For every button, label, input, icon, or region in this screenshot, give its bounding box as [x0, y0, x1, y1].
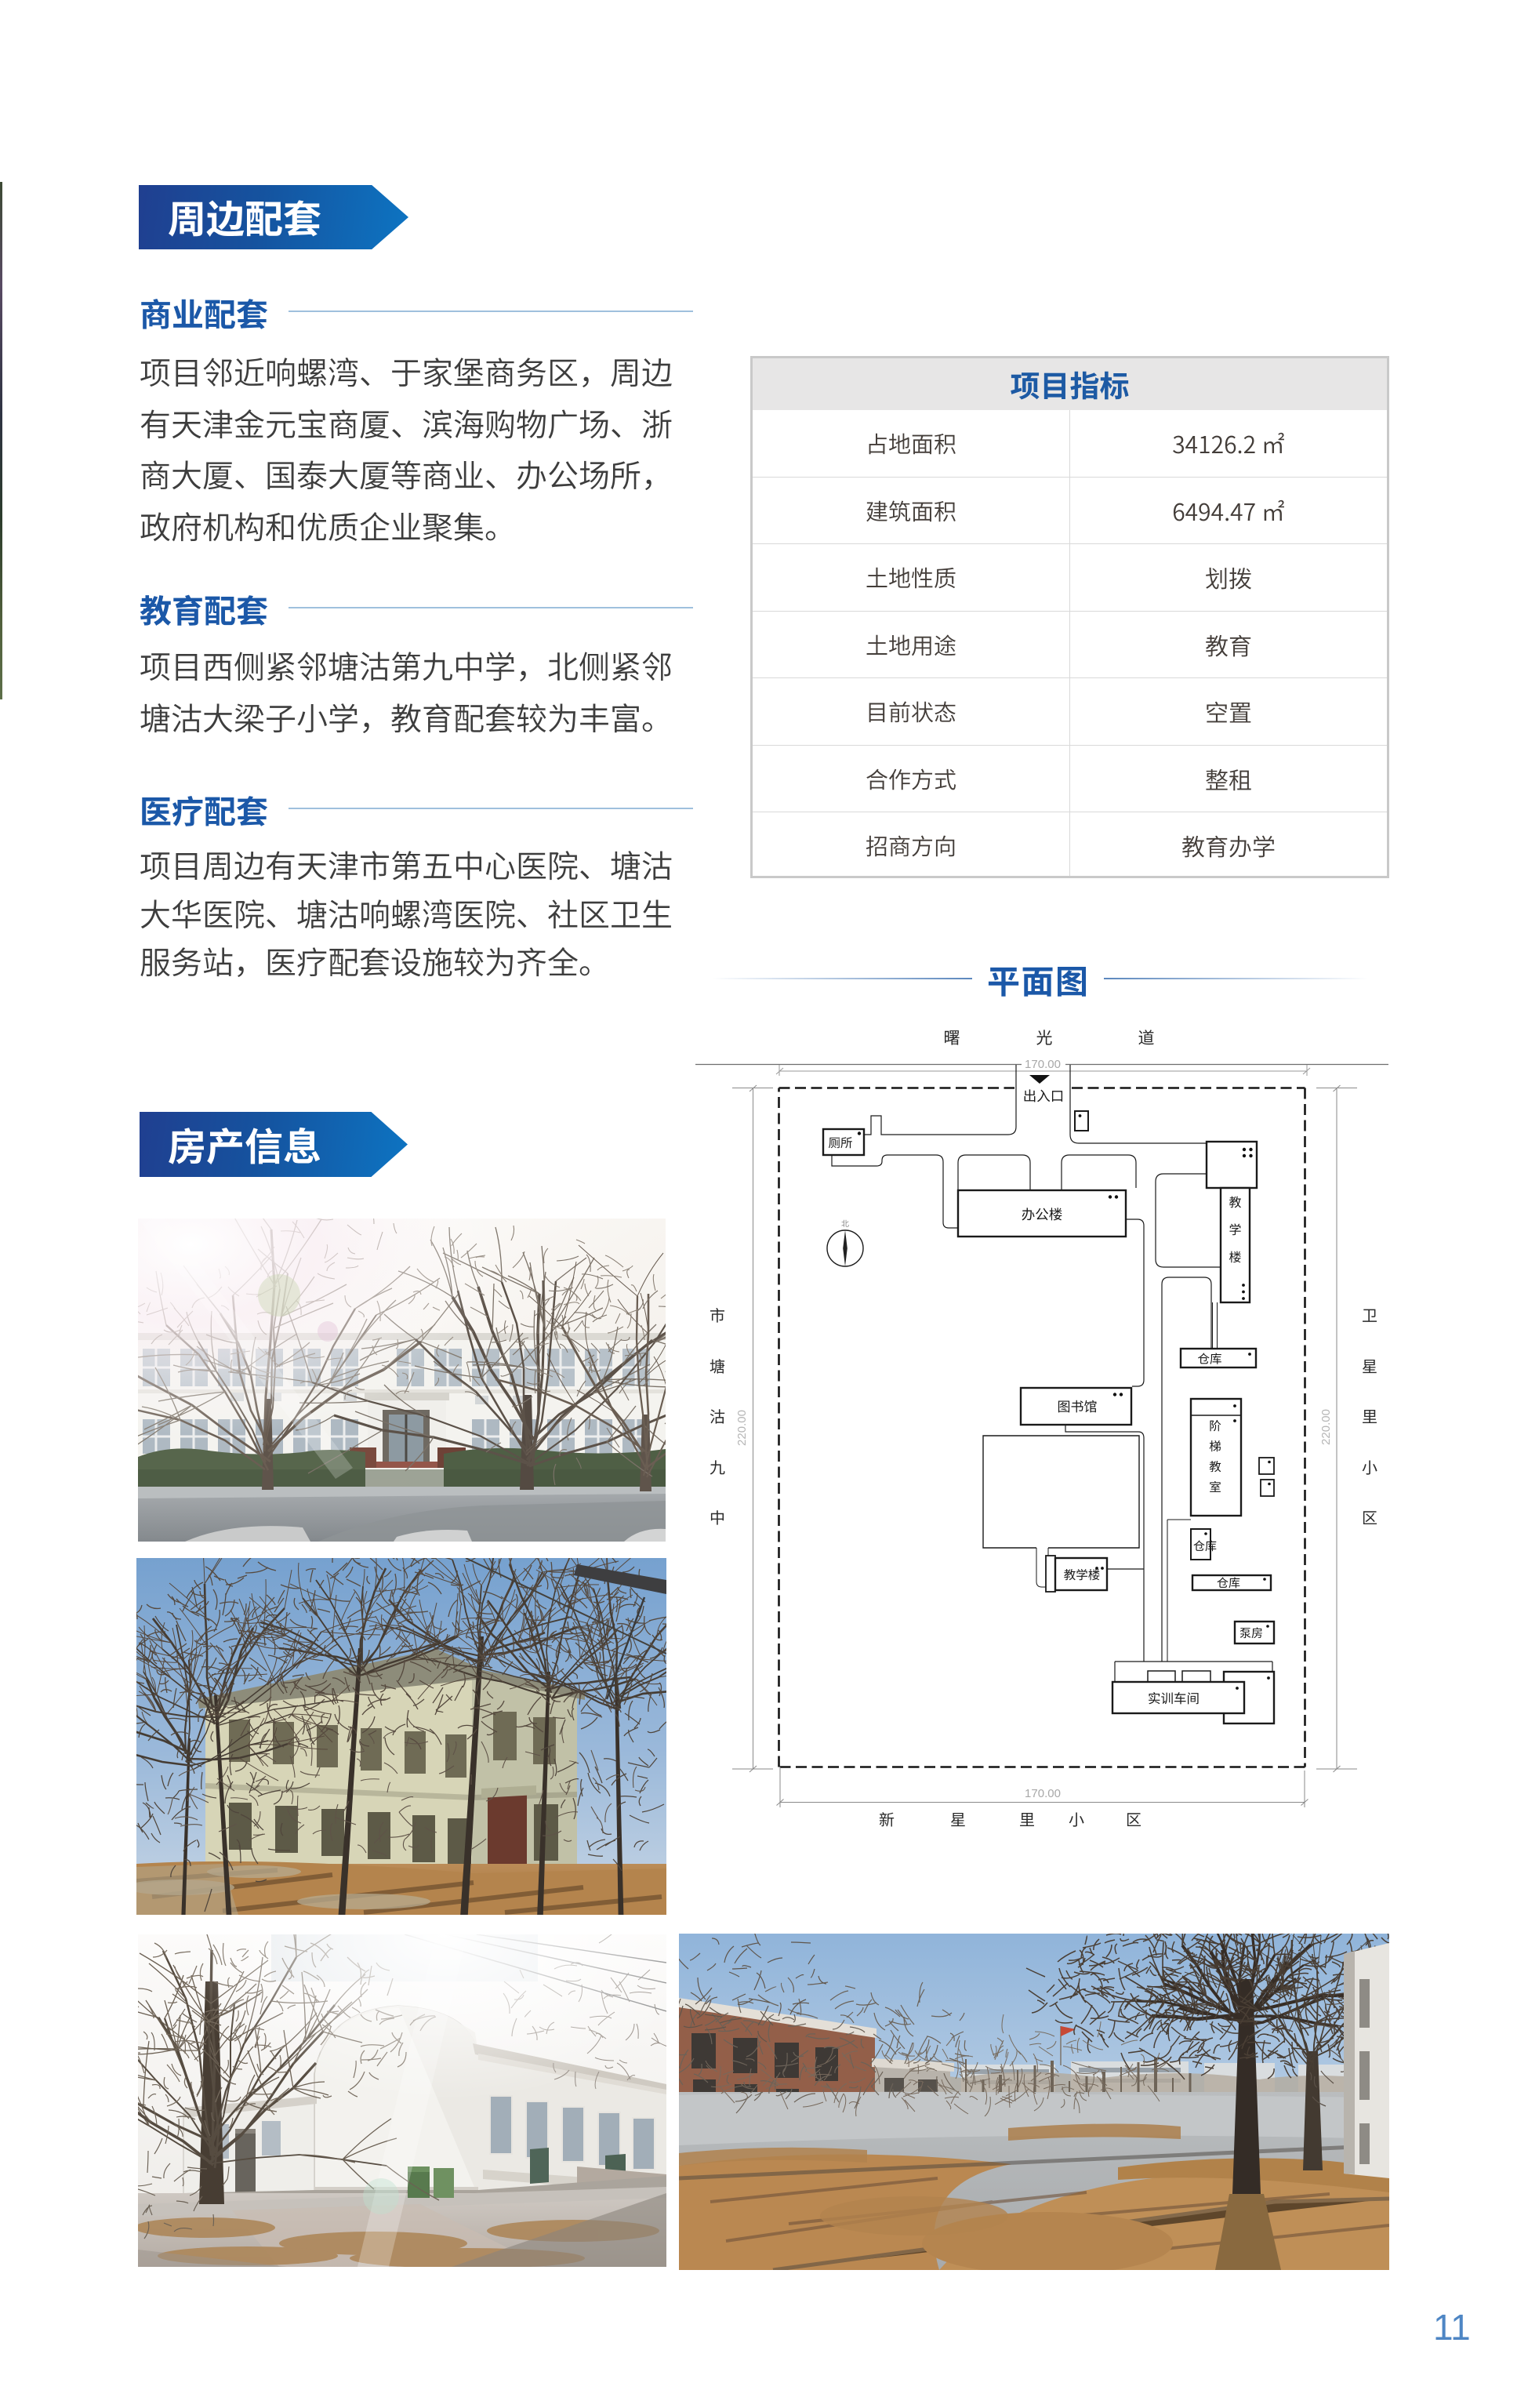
svg-text:仓库: 仓库 — [1193, 1538, 1217, 1554]
svg-text:新: 新 — [879, 1807, 895, 1830]
svg-text:中: 中 — [710, 1505, 725, 1528]
svg-text:170.00: 170.00 — [1025, 1058, 1061, 1071]
svg-text:220.00: 220.00 — [1319, 1409, 1333, 1445]
svg-text:220.00: 220.00 — [735, 1410, 749, 1446]
svg-text:教学楼: 教学楼 — [1064, 1566, 1101, 1583]
svg-text:小: 小 — [1069, 1807, 1084, 1830]
svg-text:沽: 沽 — [710, 1404, 725, 1427]
svg-text:仓库: 仓库 — [1217, 1574, 1240, 1591]
svg-text:光: 光 — [1036, 1026, 1053, 1049]
svg-text:教: 教 — [1229, 1192, 1241, 1211]
svg-text:170.00: 170.00 — [1025, 1787, 1061, 1800]
svg-text:市: 市 — [710, 1303, 725, 1326]
svg-text:区: 区 — [1362, 1505, 1377, 1528]
svg-text:图书馆: 图书馆 — [1058, 1396, 1098, 1415]
svg-text:里: 里 — [1019, 1807, 1035, 1830]
svg-text:室: 室 — [1209, 1478, 1221, 1495]
svg-text:泵房: 泵房 — [1239, 1625, 1263, 1641]
svg-text:九: 九 — [710, 1455, 725, 1478]
svg-text:办公楼: 办公楼 — [1022, 1204, 1063, 1224]
svg-text:梯: 梯 — [1209, 1437, 1221, 1455]
svg-text:区: 区 — [1126, 1807, 1141, 1830]
svg-text:道: 道 — [1138, 1026, 1155, 1049]
svg-text:里: 里 — [1362, 1404, 1377, 1427]
svg-text:厕所: 厕所 — [828, 1134, 852, 1151]
svg-text:曙: 曙 — [944, 1026, 960, 1049]
svg-text:小: 小 — [1362, 1455, 1377, 1478]
svg-text:阶: 阶 — [1209, 1417, 1221, 1434]
svg-text:北: 北 — [841, 1217, 849, 1229]
svg-text:学: 学 — [1229, 1219, 1241, 1238]
svg-text:塘: 塘 — [710, 1354, 725, 1377]
svg-text:教: 教 — [1209, 1458, 1221, 1475]
svg-text:实训车间: 实训车间 — [1148, 1688, 1200, 1707]
svg-text:楼: 楼 — [1229, 1247, 1241, 1266]
svg-text:卫: 卫 — [1362, 1303, 1377, 1326]
svg-text:星: 星 — [1362, 1354, 1377, 1377]
svg-text:出入口: 出入口 — [1023, 1086, 1065, 1106]
svg-text:星: 星 — [950, 1807, 966, 1830]
svg-text:仓库: 仓库 — [1197, 1350, 1221, 1367]
